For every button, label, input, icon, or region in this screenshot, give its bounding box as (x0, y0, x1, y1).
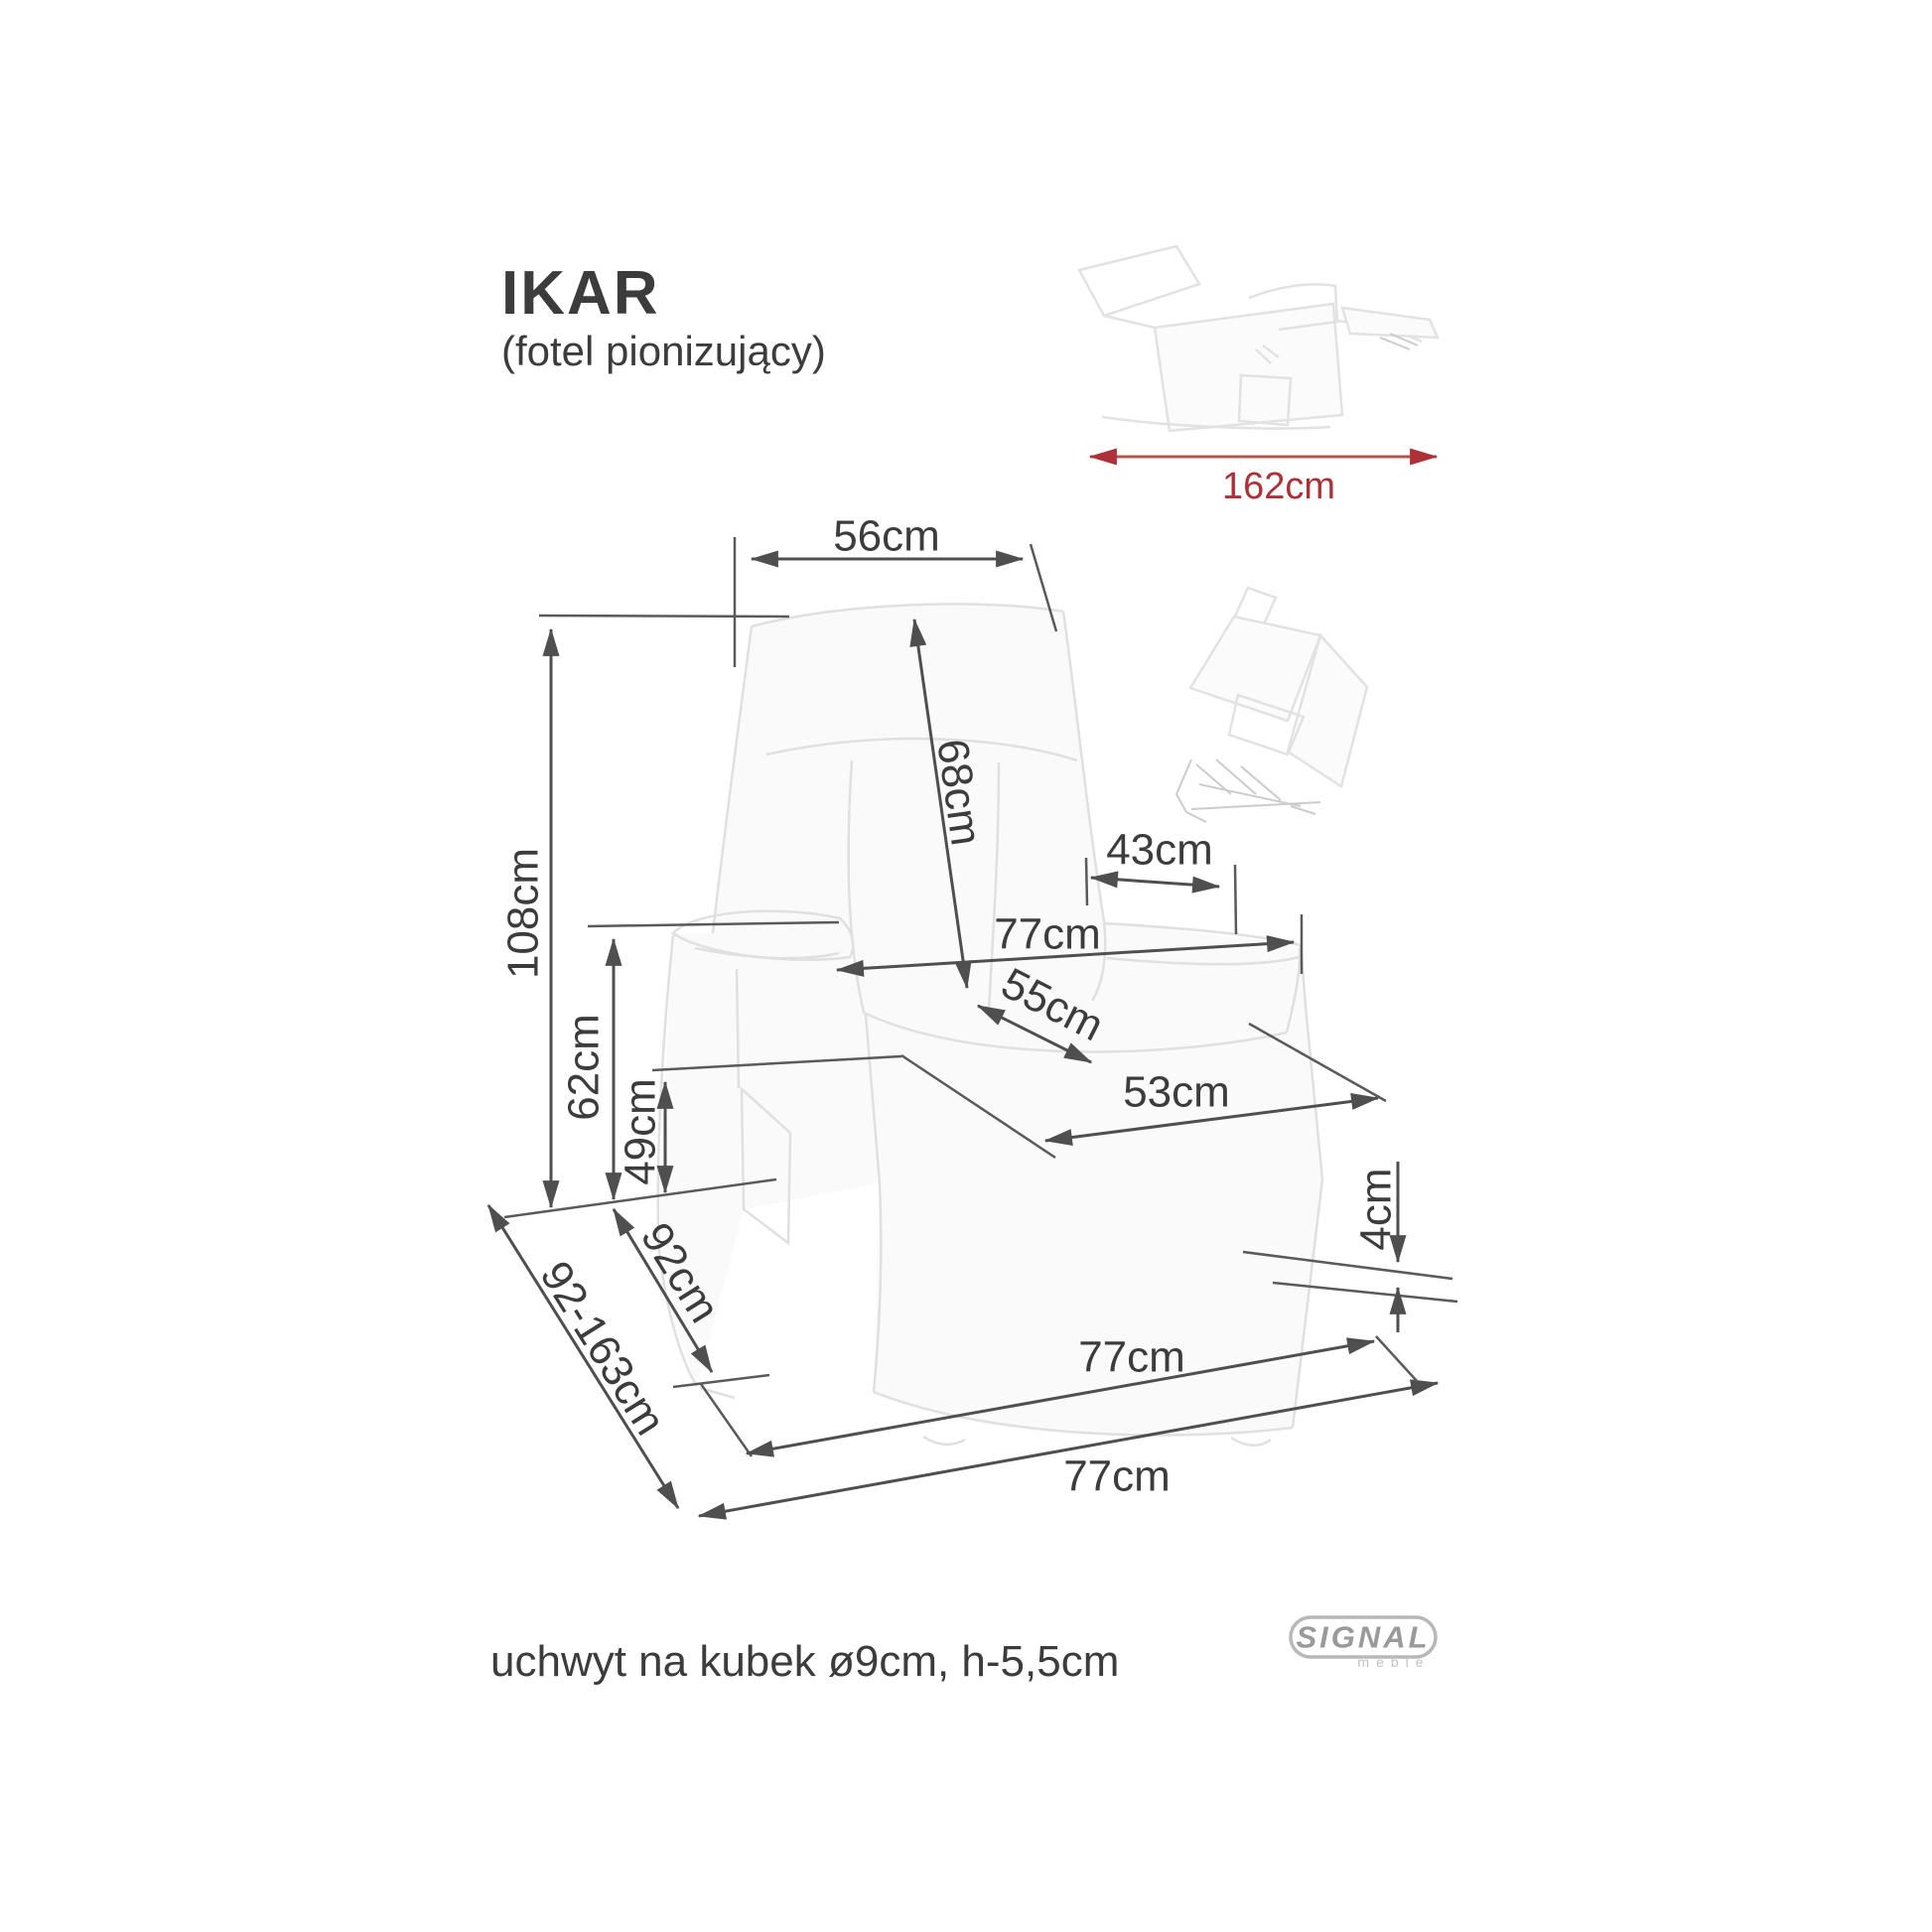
page-title: IKAR (501, 259, 660, 328)
ground-clearance-label: 4cm (1352, 1168, 1401, 1250)
extended-depth-label: 92-163cm (530, 1253, 674, 1444)
overall-width-label: 77cm (994, 910, 1101, 959)
reclined-chair-sketch (1079, 246, 1438, 431)
cup-holder-note: uchwyt na kubek ø9cm, h-5,5cm (490, 1637, 1119, 1686)
footprint-width-label: 77cm (1063, 1452, 1171, 1501)
technical-drawing-page: 162cm 56cm 108cm 62cm 49cm 92cm 92-163cm (0, 0, 1932, 1932)
logo-brand-text: SIGNAL (1296, 1620, 1430, 1655)
main-chair-drawing (658, 604, 1322, 1445)
total-height-label: 108cm (499, 848, 548, 979)
armrest-length-dimension: 43cm (1086, 826, 1236, 935)
armrest-height-label: 62cm (560, 1014, 609, 1121)
logo-sub-text: meble (1357, 1654, 1430, 1670)
reclined-length-dimension: 162cm (1090, 457, 1437, 507)
headrest-width-label: 56cm (833, 512, 940, 561)
base-width-label: 77cm (1078, 1333, 1185, 1382)
lift-chair-sketch (1176, 588, 1367, 822)
seat-depth-label: 53cm (1123, 1068, 1230, 1117)
armrest-length-label: 43cm (1106, 826, 1213, 875)
page-subtitle: (fotel pionizujący) (501, 328, 826, 374)
seat-height-label: 49cm (617, 1078, 665, 1185)
signal-logo: SIGNAL meble (1291, 1617, 1436, 1670)
dimension-drawing: 162cm 56cm 108cm 62cm 49cm 92cm 92-163cm (0, 0, 1932, 1932)
reclined-length-label: 162cm (1222, 466, 1335, 507)
